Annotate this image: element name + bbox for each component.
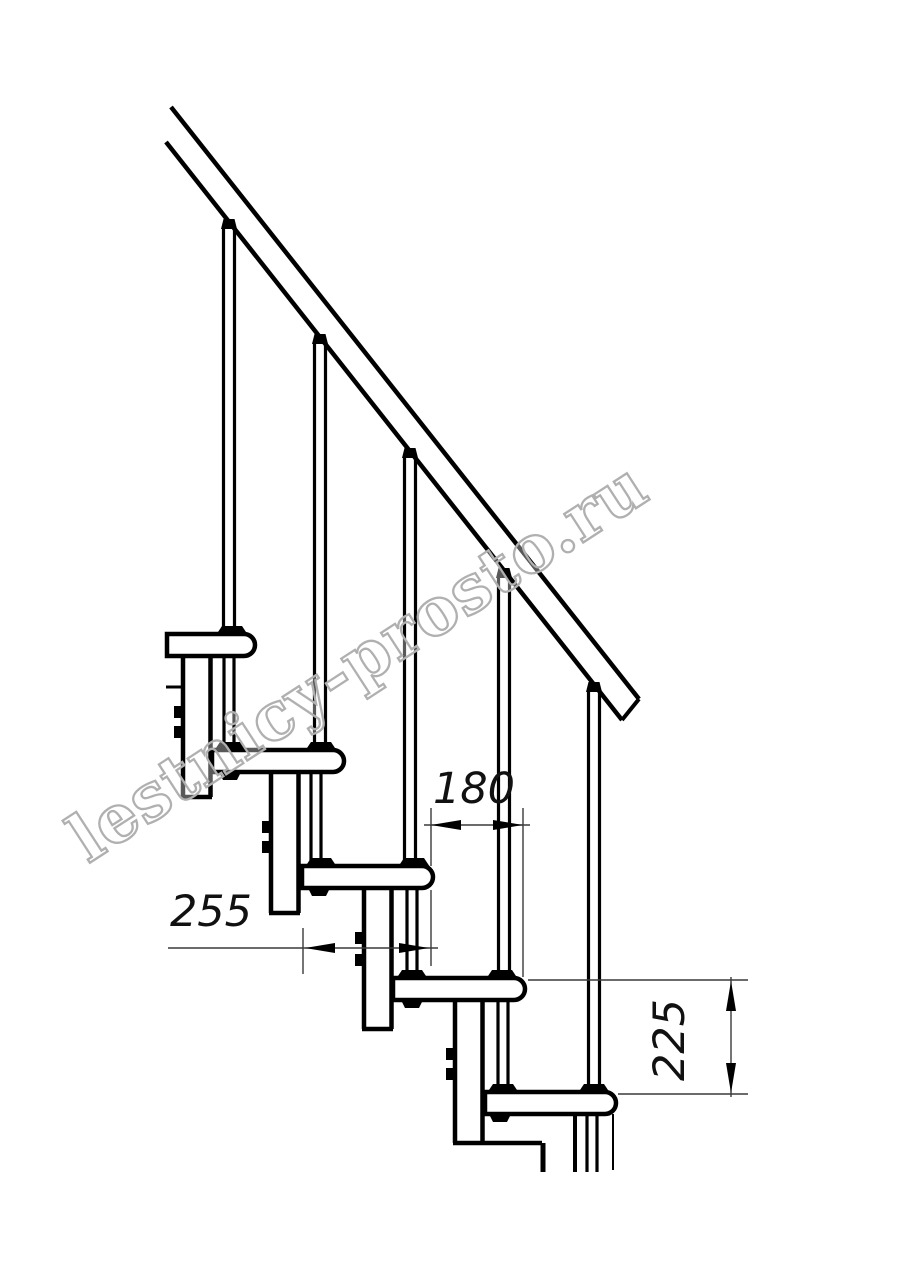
arrow-down-icon	[726, 1063, 736, 1093]
baluster-cap-icon	[402, 448, 418, 458]
foot-icon	[486, 970, 518, 979]
dimension-run-180: 180	[424, 764, 530, 977]
foot-icon	[487, 1084, 519, 1093]
rod-4	[498, 1000, 508, 1092]
support-column-3	[355, 888, 393, 1029]
staircase-drawing: 180 255 225 lestnicy-prosto.ru	[0, 0, 914, 1280]
baluster-cap-icon	[221, 219, 237, 229]
rod-5	[587, 1114, 597, 1172]
nut-icon	[308, 888, 330, 896]
baluster-5	[589, 691, 600, 1092]
foot-icon	[578, 1084, 610, 1093]
tread-1	[167, 634, 255, 656]
baluster-cap-icon	[312, 334, 328, 344]
bolt-icon	[355, 932, 366, 944]
foot-icon	[396, 970, 428, 979]
drawing-canvas: 180 255 225 lestnicy-prosto.ru	[0, 0, 914, 1280]
baluster-cap-icon	[586, 682, 602, 692]
bolt-icon	[262, 821, 273, 833]
foot-icon	[216, 626, 248, 635]
bolt-icon	[262, 841, 273, 853]
dimension-label-225: 225	[645, 999, 695, 1081]
watermark: lestnicy-prosto.ru	[54, 446, 661, 878]
baluster-1	[224, 228, 235, 634]
foot-icon	[398, 858, 430, 867]
rod-3	[407, 888, 417, 978]
bolt-icon	[174, 706, 185, 718]
arrow-left-icon	[431, 820, 461, 830]
tread-3	[302, 866, 433, 888]
dimension-rise-225: 225	[528, 977, 748, 1097]
arrow-right-icon	[399, 943, 429, 953]
dimension-label-255: 255	[170, 887, 252, 937]
arrow-up-icon	[726, 981, 736, 1011]
foot-icon	[305, 742, 337, 751]
bolt-icon	[446, 1048, 457, 1060]
nut-icon	[489, 1114, 511, 1122]
handrail-end-cap	[622, 699, 639, 720]
dimension-label-180: 180	[433, 764, 515, 814]
dimension-depth-255: 255	[168, 887, 438, 974]
bolt-icon	[355, 954, 366, 966]
tread-5	[485, 1092, 616, 1114]
support-column-2	[262, 772, 300, 913]
nut-icon	[401, 1000, 423, 1008]
bolt-icon	[446, 1068, 457, 1080]
rod-2	[311, 772, 321, 866]
arrow-left-icon	[305, 943, 335, 953]
tread-4	[393, 978, 525, 1000]
